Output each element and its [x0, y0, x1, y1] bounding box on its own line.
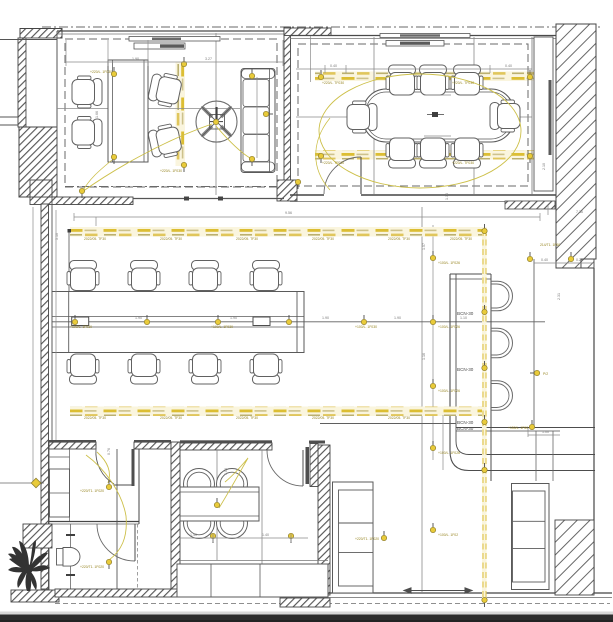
svg-text:0.40: 0.40	[330, 64, 337, 68]
svg-text:1.90: 1.90	[132, 57, 139, 61]
svg-text:2022/05. TF30: 2022/05. TF30	[388, 237, 410, 241]
svg-text:5.10: 5.10	[55, 233, 59, 240]
svg-text:1.90: 1.90	[135, 316, 142, 320]
svg-text:1.57: 1.57	[422, 243, 426, 250]
svg-text:1.16: 1.16	[445, 193, 449, 200]
svg-text:+100/L. 1F030: +100/L. 1F030	[355, 325, 377, 329]
svg-text:0.76: 0.76	[107, 448, 111, 455]
svg-text:2022/05. TF30: 2022/05. TF30	[84, 237, 106, 241]
svg-text:BCN-30: BCN-30	[457, 426, 474, 431]
svg-text:BCN-30: BCN-30	[457, 367, 474, 372]
svg-text:1.40: 1.40	[190, 533, 197, 537]
svg-text:2022/05. TF30: 2022/05. TF30	[388, 416, 410, 420]
svg-text:+220/L. 1F030: +220/L. 1F030	[90, 70, 112, 74]
svg-text:BCN-30: BCN-30	[457, 420, 474, 425]
svg-text:+220/L. 1F030: +220/L. 1F030	[160, 169, 182, 173]
svg-text:3.27: 3.27	[205, 57, 212, 61]
svg-text:+220/L. TF030: +220/L. TF030	[452, 81, 474, 85]
svg-text:+220/T1. 1F020: +220/T1. 1F020	[355, 537, 379, 541]
svg-text:2022/05. TF30: 2022/05. TF30	[450, 237, 472, 241]
svg-text:+100/L. 1F030: +100/L. 1F030	[211, 325, 233, 329]
svg-text:+150/L. 1F60: +150/L. 1F60	[508, 426, 528, 430]
svg-text:9.56: 9.56	[285, 211, 292, 215]
svg-text:2022/05. TF30: 2022/05. TF30	[312, 237, 334, 241]
svg-text:1.90: 1.90	[230, 316, 237, 320]
svg-text:2.31: 2.31	[557, 293, 561, 300]
svg-text:2022/05. TF30: 2022/05. TF30	[236, 237, 258, 241]
svg-text:1.00: 1.00	[542, 430, 549, 434]
svg-text:+220/T1. 1F020: +220/T1. 1F020	[80, 489, 104, 493]
svg-text:+220/L. TF030: +220/L. TF030	[452, 161, 474, 165]
svg-text:+100/L. 1F026: +100/L. 1F026	[438, 325, 460, 329]
svg-text:1.90: 1.90	[394, 316, 401, 320]
svg-text:2022/05. TF30: 2022/05. TF30	[160, 237, 182, 241]
svg-text:1.10: 1.10	[460, 316, 467, 320]
svg-text:214/T1. 1F60: 214/T1. 1F60	[540, 243, 560, 247]
svg-text:0.28: 0.28	[576, 258, 583, 262]
svg-text:0.40: 0.40	[541, 258, 548, 262]
svg-text:+220/L. TF030: +220/L. TF030	[322, 81, 344, 85]
svg-text:1.66: 1.66	[95, 111, 99, 118]
svg-text:+220/T1. 1F020: +220/T1. 1F020	[80, 565, 104, 569]
svg-text:0.40: 0.40	[505, 64, 512, 68]
svg-text:+100/L. 1F026: +100/L. 1F026	[438, 389, 460, 393]
svg-text:1.06: 1.06	[224, 468, 228, 475]
svg-text:+100/L. 1F030: +100/L. 1F030	[70, 325, 92, 329]
svg-text:7.36: 7.36	[576, 210, 583, 214]
svg-text:P/2: P/2	[543, 372, 548, 376]
svg-text:2022/05. TF30: 2022/05. TF30	[160, 416, 182, 420]
svg-text:+100/L. 1F02: +100/L. 1F02	[438, 533, 458, 537]
svg-text:+100/L. 1F026: +100/L. 1F026	[438, 261, 460, 265]
svg-text:+100/L. 1F026: +100/L. 1F026	[438, 451, 460, 455]
svg-text:2.10: 2.10	[542, 163, 546, 170]
svg-text:2022/05. TF30: 2022/05. TF30	[84, 416, 106, 420]
svg-text:2022/05. TF30: 2022/05. TF30	[236, 416, 258, 420]
svg-text:+220/L. TF030: +220/L. TF030	[322, 161, 344, 165]
svg-text:1.40: 1.40	[262, 533, 269, 537]
svg-text:2022/05. TF30: 2022/05. TF30	[312, 416, 334, 420]
svg-text:1.16: 1.16	[422, 353, 426, 360]
svg-text:1.90: 1.90	[322, 316, 329, 320]
